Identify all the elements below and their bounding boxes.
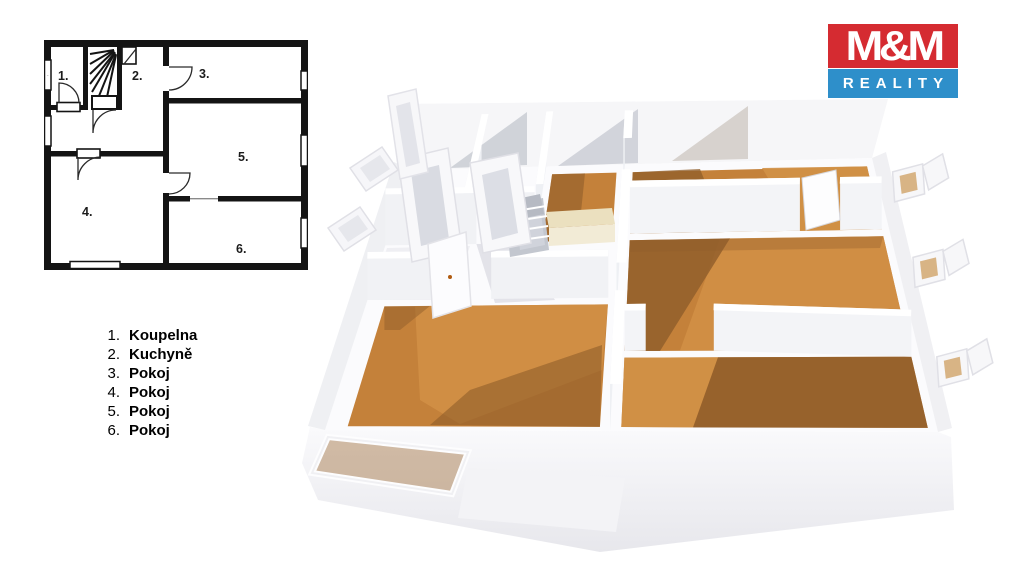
room-6-floor — [621, 357, 928, 428]
room-4-floor — [348, 304, 608, 427]
kitchen-counter — [546, 208, 615, 246]
floor-plan-3d — [0, 0, 1024, 576]
back-wall — [396, 99, 888, 170]
real-estate-floorplan-page: 1. 2. 3. 4. 5. 6. 1. Koupelna 2. Kuchyně… — [0, 0, 1024, 576]
door-handle — [448, 275, 452, 279]
